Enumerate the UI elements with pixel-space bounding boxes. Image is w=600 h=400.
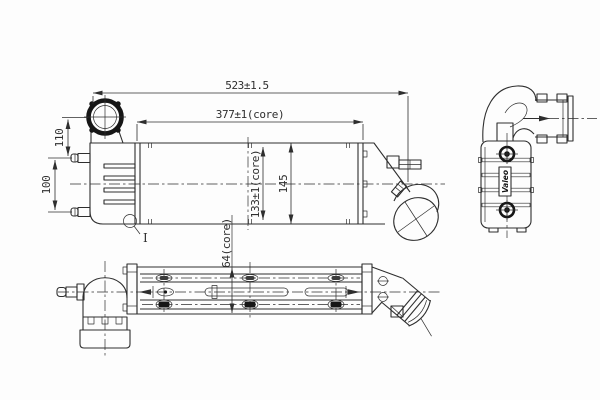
elbow-pipe [483,86,573,143]
dim-overall-height: 145 [277,175,290,194]
detail-i-label: I [143,231,148,245]
right-tank [363,143,447,249]
dim-core-depth: 64(core) [220,218,233,268]
left-tank [71,132,135,225]
lower-peg [71,208,90,217]
valeo-brand-text: Valeo [501,170,510,193]
bottom-top-view [57,261,449,357]
dim-overall-length: 523±1.5 [225,79,269,92]
dim-core-length: 377±1(core) [216,108,284,121]
mounting-bolt-top [496,144,518,164]
valeo-badge: Valeo [499,167,511,196]
top-view-body [123,264,372,314]
upper-peg [71,154,90,163]
flow-direction-arrow [523,116,550,122]
right-angled-pipe [372,267,449,342]
dim-core-height: 133±1(core) [249,150,262,218]
dim-port-offset: 110 [53,129,66,148]
right-end-view: Valeo [479,86,598,238]
intercooler-technical-drawing: 523±1.5 377±1(core) 110 100 133±1(core) … [0,0,600,400]
left-elbow [57,278,130,348]
dim-bracket-spacing: 100 [40,176,53,195]
